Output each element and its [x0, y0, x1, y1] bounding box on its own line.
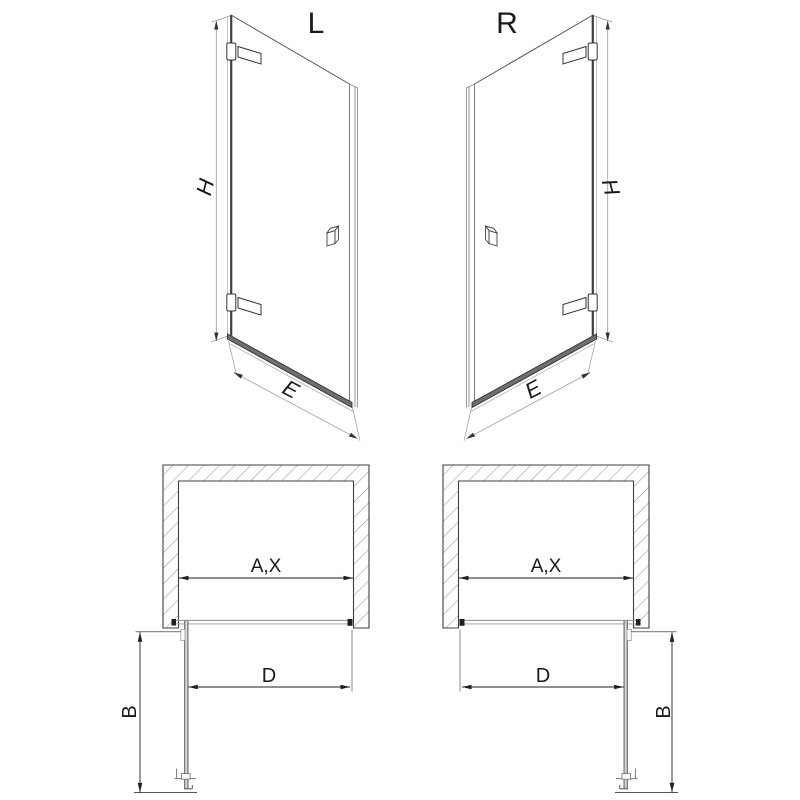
door-front-view-left: [211, 15, 360, 441]
dim-label-width-right: E: [521, 375, 546, 404]
dim-label-door-left: D: [262, 665, 276, 687]
b-arrow-top: [138, 632, 143, 642]
plan-left-wall-hatch: [163, 465, 369, 628]
ax-arrow-left: [179, 576, 189, 581]
handle-plan-block: [182, 774, 191, 780]
wall-profile-right: [348, 619, 353, 626]
dim-label-opening-left: A,X: [251, 556, 282, 577]
h-arrow-top: [214, 21, 218, 30]
e-extension-left: [229, 341, 237, 375]
dim-label-depth-right: B: [653, 705, 675, 718]
e-arrow-right: [349, 433, 358, 439]
hinge-bottom-plate: [238, 298, 261, 316]
dim-label-opening-right: A,X: [531, 556, 562, 577]
pivot-hinge-plan: [181, 630, 185, 641]
dim-label-width-left: E: [279, 375, 304, 404]
b-arrow-bottom: [138, 783, 143, 793]
label-right-variant: R: [496, 7, 518, 40]
dim-label-height-left: H: [191, 176, 219, 198]
dim-label-height-right: H: [597, 176, 625, 198]
wall-outline: [163, 465, 369, 628]
dim-label-depth-left: B: [119, 705, 141, 718]
d-arrow-right: [341, 685, 351, 690]
d-arrow-left: [188, 685, 198, 690]
plan-right-wall-hatch: [443, 465, 649, 628]
wall-profile-left: [172, 619, 177, 626]
ax-arrow-right: [344, 576, 354, 581]
e-arrow-left: [234, 373, 243, 379]
h-extension-top: [212, 16, 231, 23]
hinge-bottom-clamp: [227, 294, 236, 311]
seal-strip-cap: [350, 85, 357, 88]
dim-label-door-right: D: [536, 665, 550, 687]
technical-drawing-page: L R H H E E A,X A,X D D B B: [0, 0, 800, 800]
h-arrow-bottom: [214, 333, 218, 342]
door-front-view-right: [464, 15, 613, 441]
shower-door-technical-drawing: L R H H E E A,X A,X D D B B: [0, 0, 800, 800]
hinge-top-plate: [238, 47, 261, 65]
label-left-variant: L: [308, 7, 325, 40]
hinge-top-clamp: [227, 43, 236, 60]
